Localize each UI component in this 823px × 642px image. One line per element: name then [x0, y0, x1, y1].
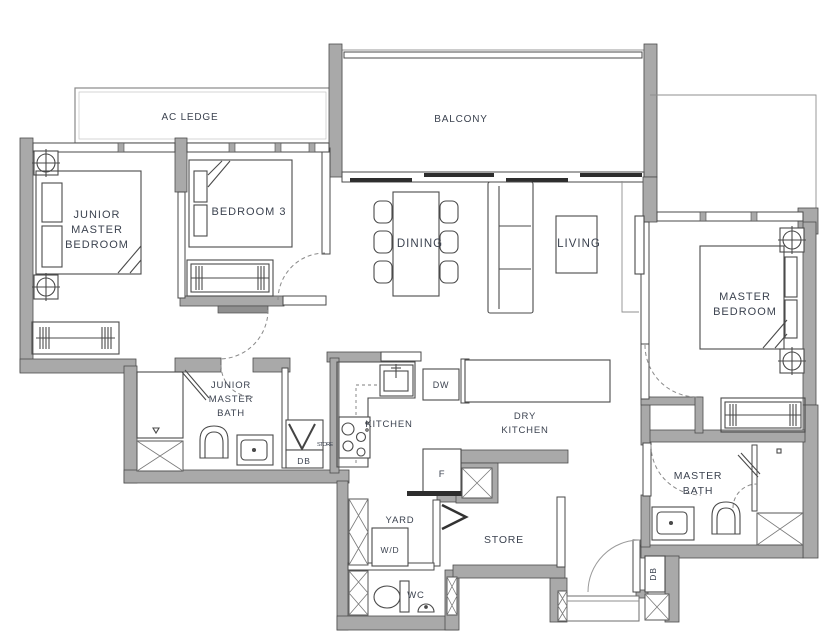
tv-console — [635, 216, 644, 274]
toilet-icon — [712, 502, 740, 534]
sofa — [488, 182, 533, 313]
wc-fixtures — [374, 581, 434, 612]
yard-label: YARD — [386, 515, 415, 526]
junior-master-bed — [36, 171, 141, 274]
washer-dryer-label: W/D — [381, 545, 400, 555]
master-wardrobe — [721, 398, 805, 432]
dry-kitchen-counter — [465, 360, 610, 402]
counter-edge — [407, 491, 462, 496]
bedroom3-bed — [189, 160, 292, 247]
entry-step — [567, 596, 639, 621]
floor-plan: AC LEDGE BALCONY JUNIOR MASTER BEDROOM B… — [0, 0, 823, 642]
master-bath-door-leaf — [643, 443, 651, 496]
sink-icon — [380, 364, 413, 396]
master-bedroom-label: MASTER — [719, 291, 771, 303]
fridge-label: F — [439, 469, 446, 480]
entry-door-leaf — [633, 540, 640, 592]
wc-label: WC — [407, 590, 424, 601]
kitchen-fittings — [337, 360, 610, 529]
shaft-icon — [558, 591, 567, 621]
junior-master-bedroom-label: JUNIOR — [74, 209, 121, 221]
svg-text:MASTER: MASTER — [209, 394, 253, 405]
toilet-icon — [200, 426, 228, 458]
master-bath-label: MASTER — [674, 470, 723, 482]
dining-label: DINING — [397, 238, 443, 250]
svg-text:KITCHEN: KITCHEN — [501, 425, 548, 436]
folding-door-icon — [442, 505, 466, 529]
svg-text:BATH: BATH — [217, 408, 245, 419]
column-icon — [778, 226, 806, 254]
svg-text:BEDROOM: BEDROOM — [65, 239, 129, 251]
kitchen-label: KITCHEN — [365, 419, 412, 430]
shower-recess — [137, 372, 183, 438]
svg-text:BATH: BATH — [683, 485, 713, 497]
balcony-label: BALCONY — [434, 114, 487, 125]
bedroom3-label: BEDROOM 3 — [211, 206, 286, 218]
balcony — [329, 44, 657, 182]
bedroom3-wardrobe — [187, 260, 273, 296]
svg-text:MASTER: MASTER — [71, 224, 123, 236]
shaft-icon — [349, 499, 368, 565]
toilet-icon — [374, 586, 400, 608]
bedroom3-door-leaf — [283, 296, 326, 305]
shaft-icon — [349, 571, 368, 615]
junior-master-bath-label: JUNIOR — [211, 380, 251, 391]
aircon-ledge-icon — [137, 441, 183, 471]
db-hall-label: DB — [297, 456, 310, 466]
column-icon — [778, 347, 806, 375]
dry-kitchen-label: DRY — [514, 411, 536, 422]
shaft-icon — [462, 468, 492, 498]
ac-ledge-label: AC LEDGE — [162, 112, 219, 123]
kitchen-slider — [381, 352, 421, 361]
floor-plan-drawing: AC LEDGE BALCONY JUNIOR MASTER BEDROOM B… — [0, 0, 823, 642]
db-entry-label: DB — [648, 567, 658, 580]
shaft-icon — [645, 594, 669, 620]
living-label: LIVING — [557, 238, 601, 250]
master-ac-ledge — [650, 95, 816, 212]
shaft-icon — [447, 577, 457, 615]
junior-master-wardrobe — [32, 322, 119, 354]
aircon-ledge-icon — [757, 513, 803, 545]
shower-screen — [182, 370, 209, 400]
master-bedroom-door-leaf — [641, 344, 649, 399]
svg-text:BEDROOM: BEDROOM — [713, 306, 777, 318]
junior-bedroom-door-leaf — [218, 306, 268, 313]
store-label: STORE — [484, 534, 524, 546]
dishwasher-label: DW — [433, 380, 450, 390]
column-icon — [32, 273, 60, 301]
store-closet-label: STORE — [317, 442, 334, 448]
